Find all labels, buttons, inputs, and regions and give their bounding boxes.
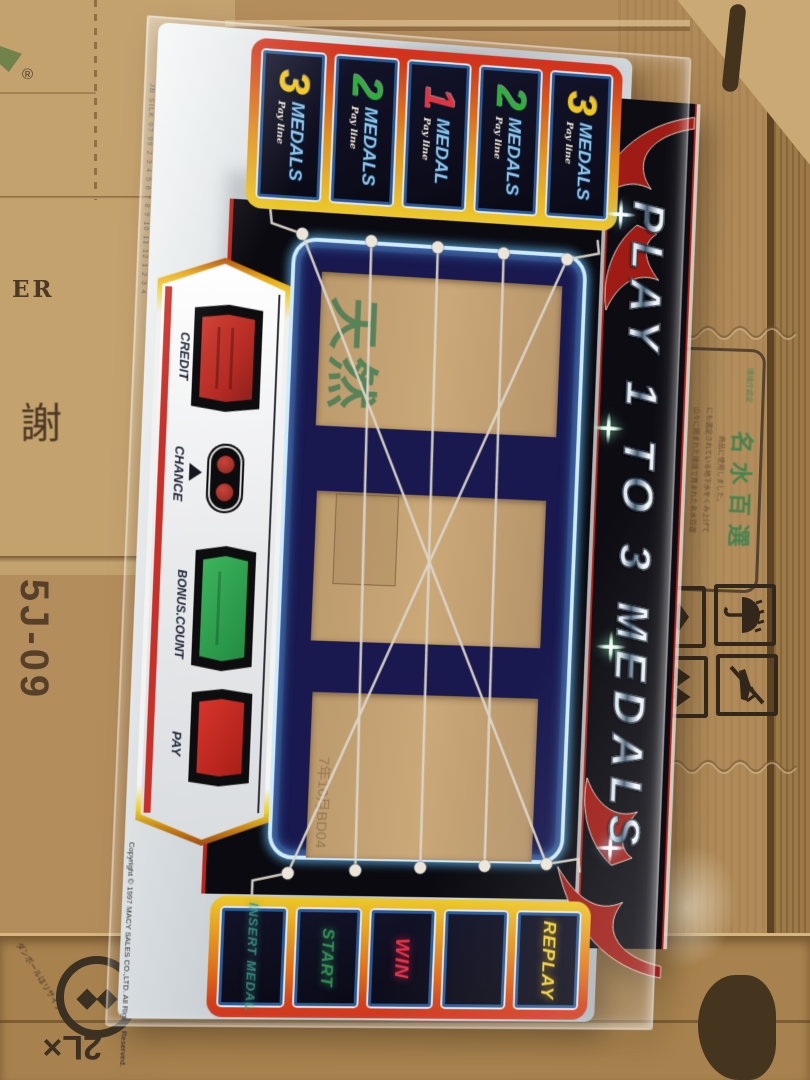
stamp-title: 名水百選 [727,422,758,563]
stamp-header: 環境庁認定 [744,353,755,417]
cardboard-plank [774,0,810,1080]
crease-line [0,92,96,94]
box-code-print: 5J-09 [13,545,55,735]
kanji-sha-print: 謝 [20,390,62,451]
cut-notch [698,975,776,1080]
slot-machine-glass-panel: JB SILK 97 99 2 3 4 5 6 7 8 9 10 11 12 1… [105,15,692,1030]
flap-edge-highlight [225,20,690,26]
er-print: ER [12,276,55,303]
photo-stage: ® ER 謝 5J-09 ◆◆ ダンボールはリサイクル 2L× 環境庁認定 名水… [0,0,810,1080]
no-cutter-icon [716,654,778,716]
registered-mark: ® [22,66,33,83]
keep-dry-icon [714,584,776,646]
crease-stitch [94,0,97,200]
glass-edge [105,15,692,1030]
bottle-size-print: 2L× [26,1026,102,1066]
